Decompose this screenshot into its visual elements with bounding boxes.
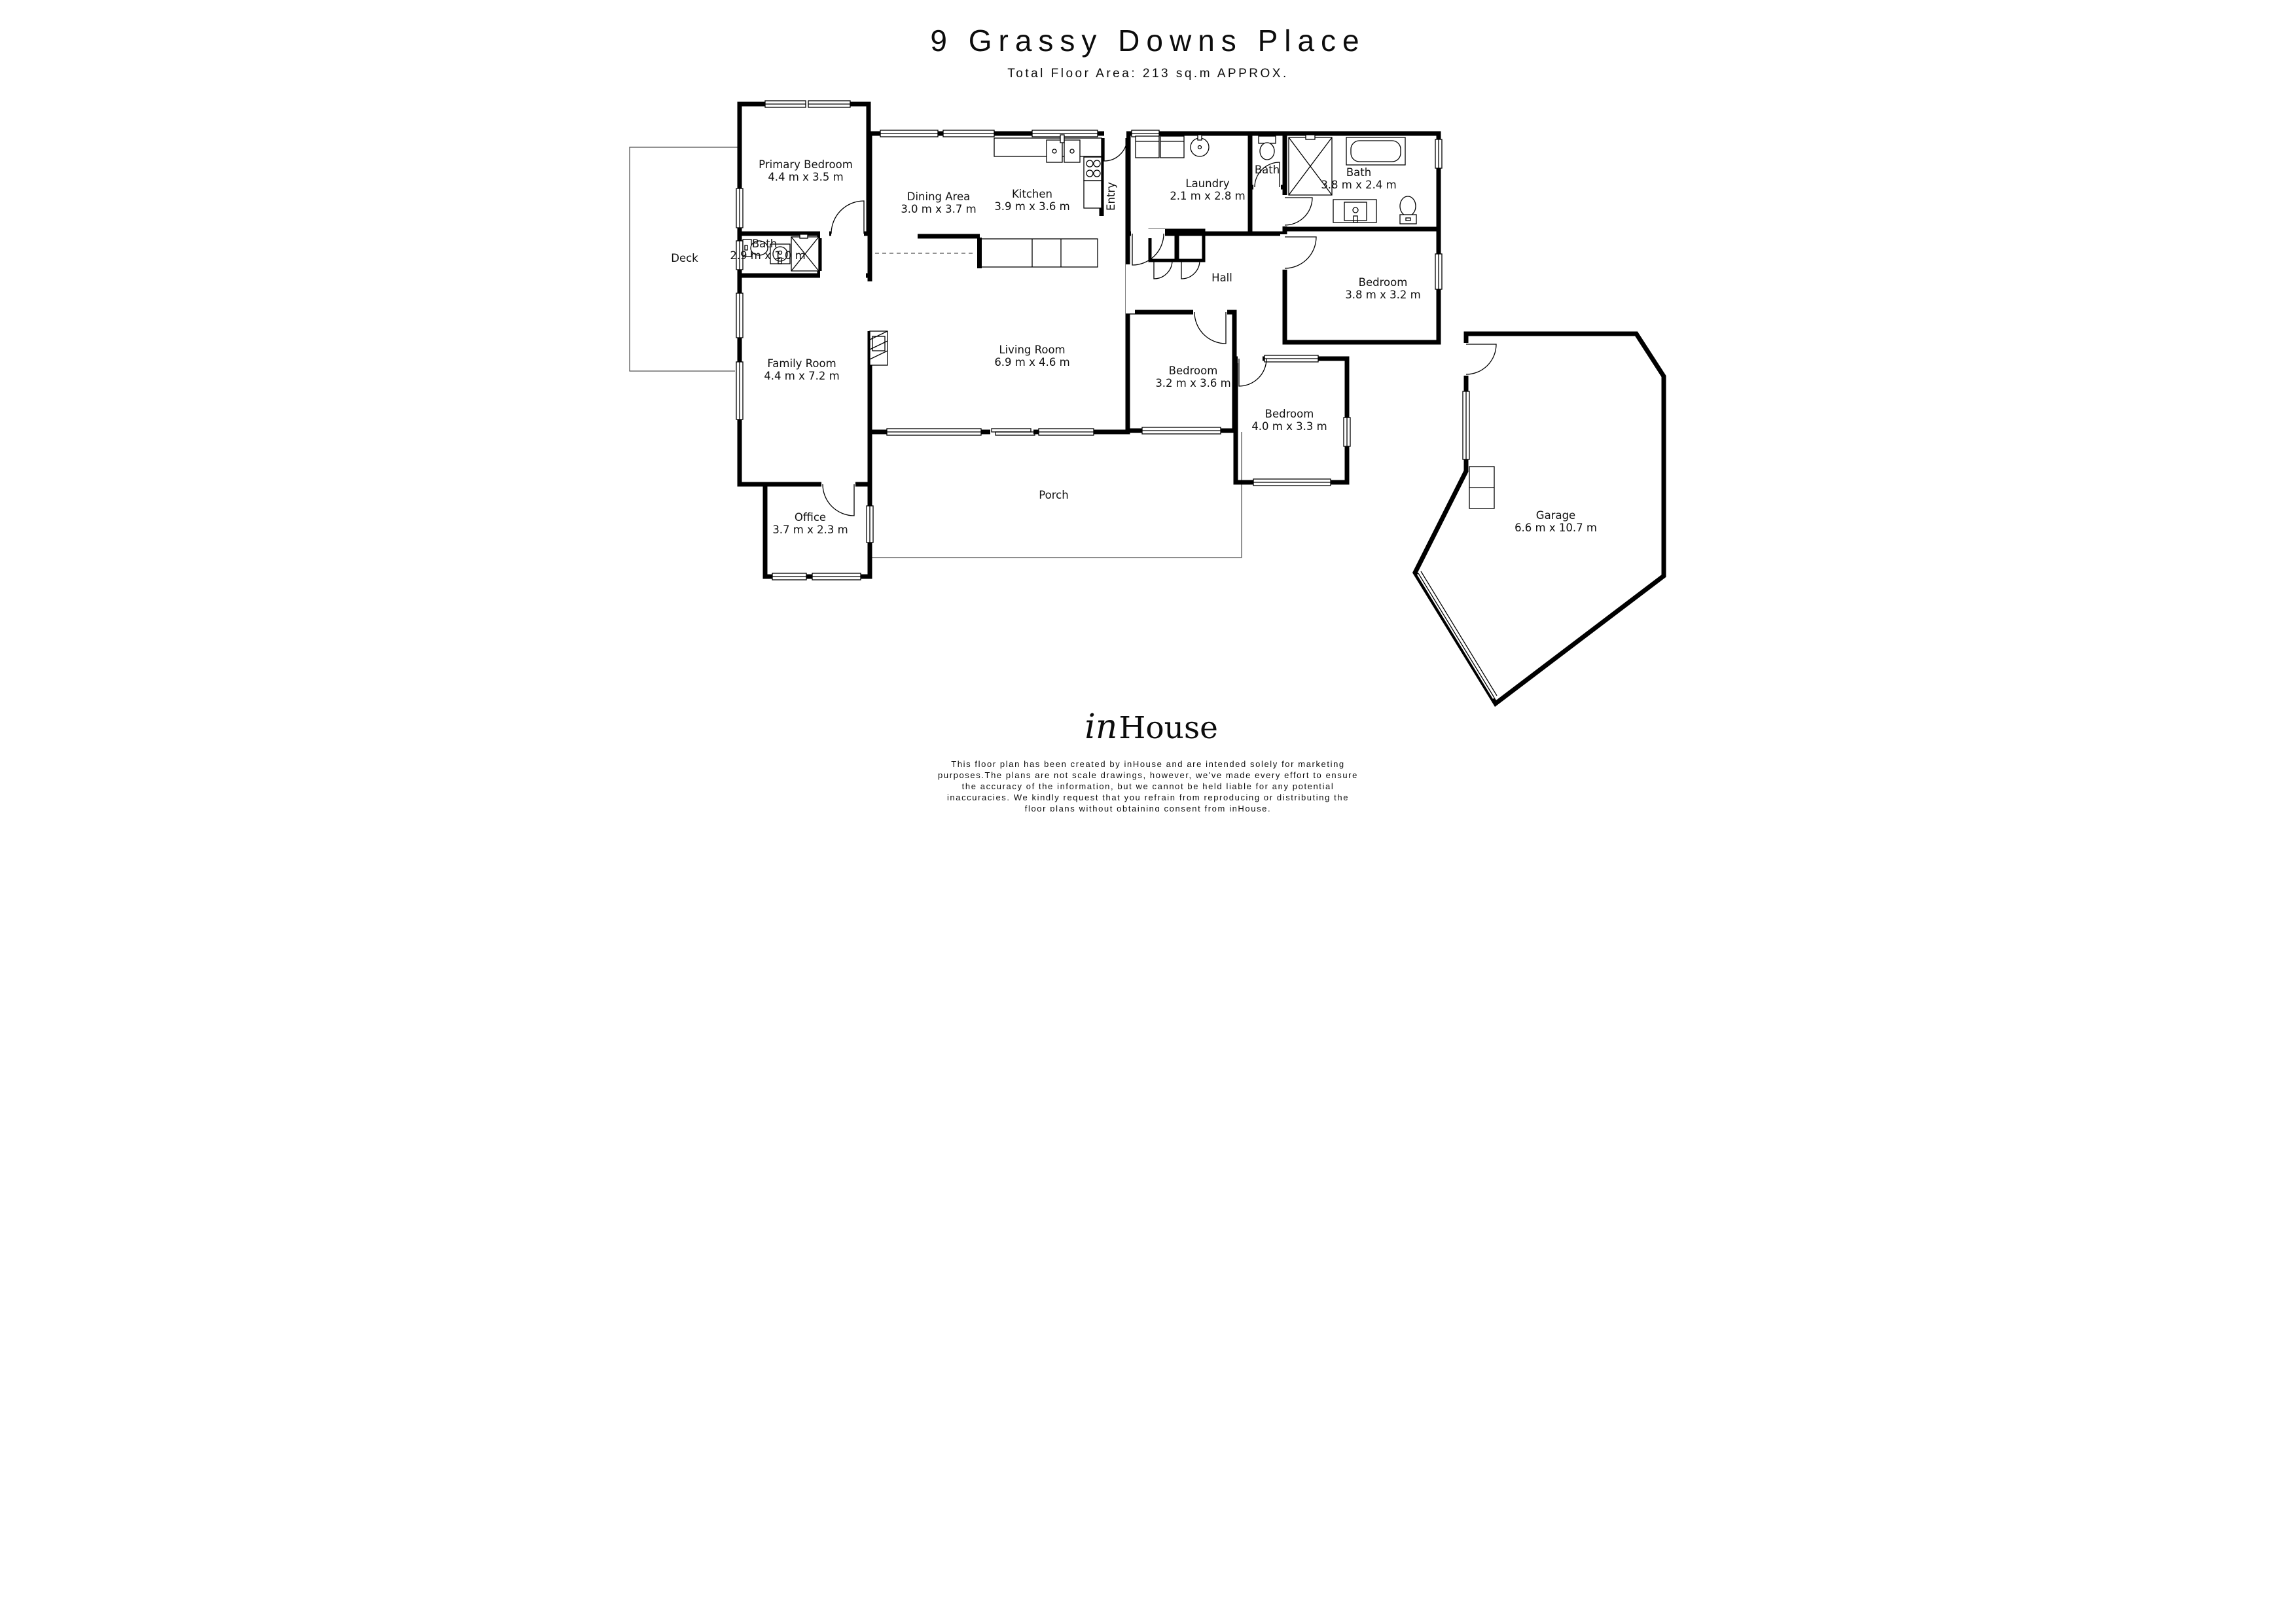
hall-label: Hall [1211,272,1232,284]
small-bath-fixtures [1259,136,1276,160]
porch-label: Porch [1039,489,1068,501]
page-subtitle: Total Floor Area: 213 sq.m APPROX. [1007,67,1288,80]
disclaimer-line-2: purposes.The plans are not scale drawing… [938,770,1358,780]
disclaimer: This floor plan has been created by inHo… [938,759,1358,811]
family-room-label: Family Room [767,357,836,370]
bedroom-mid-dims: 3.2 m x 3.6 m [1155,377,1230,389]
island-bench [875,238,1098,268]
bedroom-right-label: Bedroom [1265,408,1314,420]
entry-label: Entry [1105,182,1117,211]
living-room-dims: 6.9 m x 4.6 m [994,356,1069,368]
family-room-dims: 4.4 m x 7.2 m [764,370,839,382]
washer-icon [1136,136,1159,158]
garage-label: Garage [1536,509,1575,522]
page-title: 9 Grassy Downs Place [930,24,1365,58]
office-label: Office [795,511,826,524]
bedroom-mid-label: Bedroom [1169,365,1218,377]
logo: inHouse [1062,707,1235,747]
bedroom-rear-dims: 3.8 m x 3.2 m [1345,289,1420,301]
main-bath-label: Bath [1346,166,1371,179]
primary-bedroom-dims: 4.4 m x 3.5 m [768,171,843,183]
svg-text:inHouse: inHouse [1062,707,1235,747]
disclaimer-line-1: This floor plan has been created by inHo… [951,759,1345,769]
laundry-fixtures [1136,135,1209,158]
laundry-label: Laundry [1185,177,1229,190]
garage-cabinet-icon [1469,467,1494,508]
fireplace-icon [870,331,888,365]
garage-dims: 6.6 m x 10.7 m [1515,522,1597,534]
kitchen-dims: 3.9 m x 3.6 m [994,200,1069,213]
logo-house-serif: House [1119,710,1218,746]
ensuite-bath-label: Bath [752,238,777,250]
disclaimer-line-5: floor plans without obtaining consent fr… [1025,804,1271,811]
dining-area-label: Dining Area [907,190,970,203]
sink-icon [1191,135,1209,156]
ensuite-bath-dims: 2.9 m x 1.0 m [730,249,805,262]
deck-label: Deck [671,252,698,264]
toilet-icon [1400,196,1416,224]
disclaimer-line-3: the accuracy of the information, but we … [962,781,1335,791]
floorplan-canvas: 9 Grassy Downs Place Total Floor Area: 2… [574,0,1722,811]
main-bath-dims: 3.8 m x 2.4 m [1321,179,1396,191]
bedroom-rear-label: Bedroom [1359,276,1408,289]
dryer-icon [1160,136,1184,158]
stove-icon [1084,157,1102,181]
dining-area-dims: 3.0 m x 3.7 m [901,203,976,215]
bedroom-right-dims: 4.0 m x 3.3 m [1251,420,1327,433]
primary-bedroom-label: Primary Bedroom [759,158,853,171]
small-bath-label: Bath [1255,164,1280,176]
logo-in-script: in [1085,707,1117,747]
kitchen-label: Kitchen [1012,188,1052,200]
floorplan-page: 9 Grassy Downs Place Total Floor Area: 2… [574,0,1722,811]
laundry-dims: 2.1 m x 2.8 m [1170,190,1245,202]
office-dims: 3.7 m x 2.3 m [772,524,848,536]
bathtub-icon [1346,137,1405,165]
toilet-icon [1259,136,1276,160]
vanity-icon [1333,200,1376,223]
disclaimer-line-4: inaccuracies. We kindly request that you… [947,793,1349,802]
living-room-label: Living Room [999,344,1065,356]
